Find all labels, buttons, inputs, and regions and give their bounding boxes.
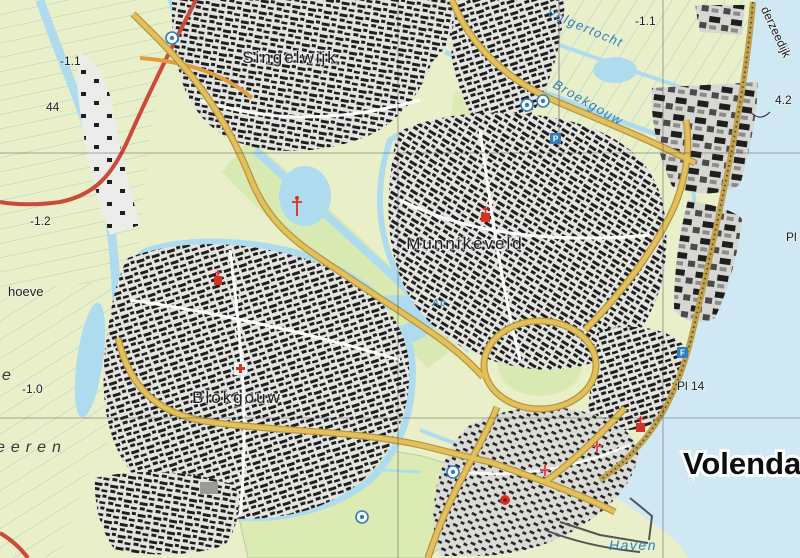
label-44: 44 — [46, 100, 60, 114]
monument-icon — [500, 495, 510, 505]
label-elev-w: -1.2 — [30, 214, 51, 228]
label-elev-ne: -1.1 — [635, 14, 656, 28]
topo-map-svg: P F S — [0, 0, 800, 558]
label-polder-eeren: eeren — [0, 439, 67, 456]
hospital-cross-icon — [234, 362, 247, 375]
parking-icon: P — [550, 133, 561, 144]
label-elev-sw: -1.0 — [22, 382, 43, 396]
facility-icon: F — [677, 347, 688, 358]
label-hoeve: hoeve — [8, 284, 43, 299]
facility-glyph: F — [680, 349, 685, 358]
parking-glyph: P — [553, 135, 559, 144]
pond-north — [279, 166, 331, 226]
sports-hall-icon — [537, 95, 549, 107]
sports-hall-building — [200, 482, 218, 494]
label-munnikeveld: Munnikeveld — [406, 234, 523, 253]
label-singelwijk: Singelwijk — [242, 48, 338, 67]
pond-northeast — [593, 57, 637, 83]
map-canvas[interactable]: P F S — [0, 0, 800, 558]
label-ab: Ab — [431, 298, 447, 309]
sports-field-icon — [447, 466, 459, 478]
cluster-topright — [695, 5, 745, 35]
sports-hall-icon — [521, 99, 533, 111]
label-pl14: Pl 14 — [677, 379, 705, 393]
label-blokgouw: Blokgouw — [192, 388, 282, 407]
label-elev-nw: -1.1 — [60, 54, 81, 68]
label-elev-dike: 4.2 — [775, 93, 792, 107]
leisure-icon — [166, 32, 178, 44]
label-pl: Pl — [786, 230, 797, 244]
label-haven: Haven — [609, 537, 657, 553]
label-polder-e: e — [2, 367, 17, 384]
label-volendam: Volendam — [683, 446, 800, 481]
sports-field-icon — [356, 511, 368, 523]
